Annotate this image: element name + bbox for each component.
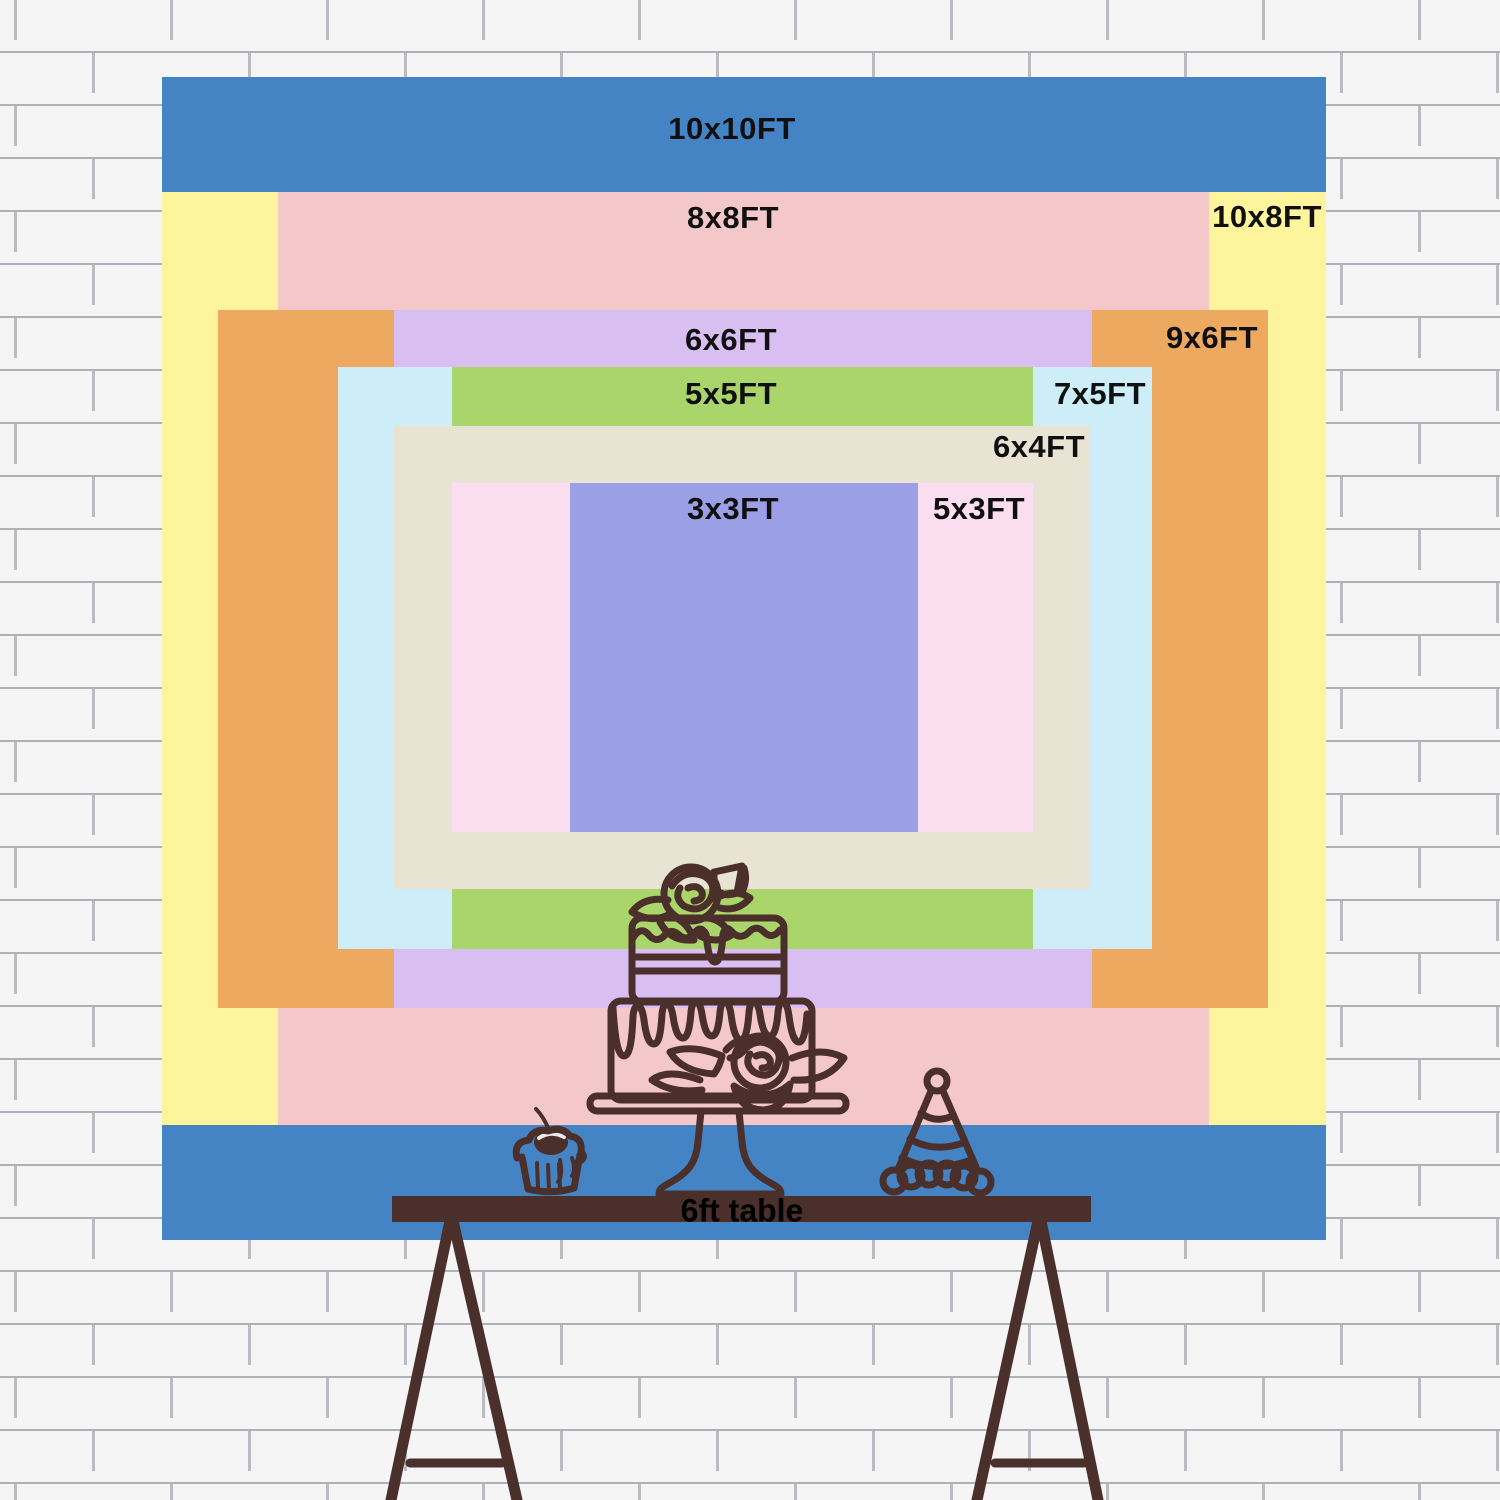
cake-stand [659,1111,781,1194]
party-hat-illustration [883,1071,991,1193]
flower-leaf [792,1052,844,1080]
rose-center [688,887,702,901]
cherry-stem [536,1109,549,1130]
cup-ridge [559,1164,560,1189]
backdrop-size-chart-scene: 10x10FT 8x8FT 10x8FT 6x6FT 9x6FT 5x5FT 7… [0,0,1500,1500]
hat-cone-side [943,1091,976,1167]
table-leg [977,1221,1038,1500]
flower-leaf [652,1074,702,1091]
cup-ridge [548,1165,549,1190]
trestle-table [391,1196,1098,1500]
table-leg [391,1221,450,1500]
foreground-illustrations [0,0,1500,1500]
flower-leaf [632,899,670,918]
cupcake-illustration [516,1109,583,1192]
table-leg [1041,1221,1098,1500]
cup-ridge [537,1163,538,1188]
hat-pom [969,1171,991,1193]
flower-leaf [716,893,750,909]
flower-leaf [670,1049,722,1074]
bud-stem [742,868,746,892]
table-leg [453,1221,517,1500]
hat-stripe [921,1113,950,1119]
hat-stripe [910,1139,963,1147]
cake-illustration [590,866,846,1194]
rose-center [756,1055,770,1068]
table-size-label: 6ft table [681,1193,804,1230]
